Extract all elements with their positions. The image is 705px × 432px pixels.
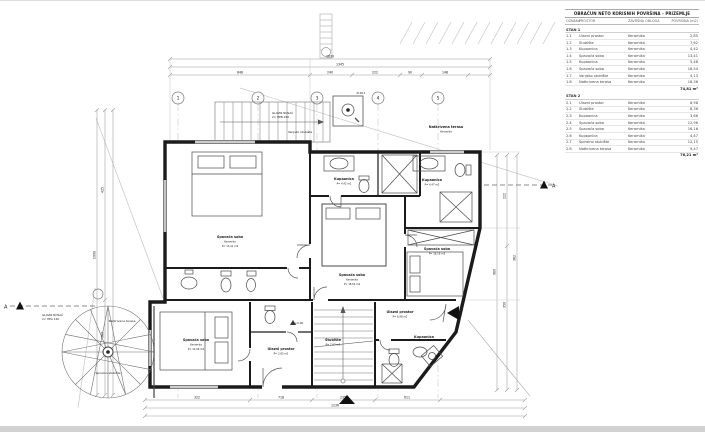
table-cell: 1.2: [565, 39, 578, 46]
table-cell: Spavaća soba: [578, 126, 627, 133]
table-cell: Stubište: [578, 39, 627, 46]
area-table-rows: STAN 11.1Ulazni prostorKeramika2,851.2St…: [565, 25, 699, 159]
table-row: 1.1Ulazni prostorKeramika2,85: [565, 33, 699, 40]
room-finish: Keramika: [224, 240, 236, 244]
table-cell: Keramika: [627, 79, 667, 86]
table-cell: 2.4: [565, 119, 578, 126]
dim-bottom: 611: [404, 396, 410, 400]
table-cell: 1.4: [565, 53, 578, 60]
table-cell: Keramika: [627, 53, 667, 60]
room-label: Ulazni prostor: [267, 347, 294, 351]
dim-top: 148: [442, 71, 448, 75]
table-row: 2.8Natkrivena terasaKeramika9,47: [565, 146, 699, 153]
beam-note: 2× HEB 240: [272, 115, 289, 119]
room-label: Vanjsko stubište: [288, 130, 312, 134]
dim-right: 362: [513, 255, 517, 261]
table-section-row: STAN 2: [565, 92, 699, 100]
grid-number: 1: [177, 96, 180, 102]
table-cell: 1.8: [565, 79, 578, 86]
room-area: P= 16,16 m2: [429, 252, 446, 256]
table-row: 1.7Vanjsko stubišteKeramika4,13: [565, 72, 699, 79]
dim-bottom: 718: [278, 396, 284, 400]
table-section-row: STAN 1: [565, 25, 699, 33]
section-arrow-icon: [540, 181, 548, 189]
table-cell: Kupaonica: [578, 46, 627, 53]
table-cell: Keramika: [627, 72, 667, 79]
section-letter: A: [552, 184, 556, 190]
dim-bottom: 322: [194, 396, 200, 400]
table-cell: Keramika: [627, 139, 667, 146]
table-cell: Spavaća soba: [578, 119, 627, 126]
room-label: Natkrivena terasa: [429, 125, 464, 129]
table-cell: Keramika: [627, 99, 667, 106]
dim-top: 848: [237, 71, 243, 75]
table-cell: 4,13: [667, 72, 699, 79]
table-cell: Keramika: [627, 33, 667, 40]
table-cell: 2.2: [565, 106, 578, 113]
table-cell: 1.5: [565, 59, 578, 66]
dim-top: 1345: [336, 63, 344, 67]
table-cell: 2.3: [565, 113, 578, 120]
hatch-band: [400, 22, 555, 44]
external-stair: [215, 102, 330, 142]
table-cell: 2.8: [565, 146, 578, 153]
grid-number: 4: [377, 96, 380, 102]
room-label: Ulazni prostor: [386, 310, 413, 314]
sheet-bottom-edge: [0, 426, 705, 432]
table-cell: 1.7: [565, 72, 578, 79]
grid-bubble: [93, 289, 103, 299]
table-cell: 13,41: [667, 53, 699, 60]
dim-top: 222: [372, 71, 378, 75]
area-table-title: OBRAČUN NETO KORISNIH POVRŠINA - PRIZEML…: [565, 9, 699, 18]
table-row: 2.6KupaonicaKeramika4,47: [565, 132, 699, 139]
table-row: 2.1Ulazni prostorKeramika8,98: [565, 99, 699, 106]
table-cell: 12,15: [667, 139, 699, 146]
table-cell: Vanjsko stubište: [578, 72, 627, 79]
table-cell: 4,47: [667, 132, 699, 139]
table-cell: 2.6: [565, 132, 578, 139]
table-row: 2.5Spavaća sobaKeramika16,16: [565, 126, 699, 133]
beam-note: 2× HEA 140: [42, 317, 59, 321]
table-cell: 12,96: [667, 119, 699, 126]
table-cell: 1.1: [565, 33, 578, 40]
dim-right: 350: [503, 302, 507, 308]
room-label: Spavaća soba: [183, 338, 210, 342]
table-cell: Ulazni prostor: [578, 33, 627, 40]
table-cell: 2,85: [667, 33, 699, 40]
sheet-top-border: [0, 0, 705, 1]
table-cell: 18,54: [667, 66, 699, 73]
table-cell: Keramika: [627, 126, 667, 133]
room-finish: Keramika: [440, 130, 452, 134]
dim-right: 222: [503, 193, 507, 199]
table-cell: 1.3: [565, 46, 578, 53]
room-label: Spiralno stubište: [95, 371, 120, 375]
table-cell: 1.6: [565, 66, 578, 73]
table-cell: Keramika: [627, 59, 667, 66]
table-cell: 9,47: [667, 146, 699, 153]
table-row: 1.2StubišteKeramika7,62: [565, 39, 699, 46]
table-cell: Kupaonica: [578, 59, 627, 66]
table-cell: Ulazni prostor: [578, 99, 627, 106]
room-finish: Keramika: [190, 343, 202, 347]
table-row: 2.7Spiralno stubišteKeramika12,15: [565, 139, 699, 146]
table-cell: 3,66: [667, 113, 699, 120]
room-area: P= 4,42 m2: [337, 182, 352, 186]
table-cell: Keramika: [627, 132, 667, 139]
room-label: Spavaća soba: [217, 235, 244, 239]
table-row: 1.3KupaonicaKeramika4,42: [565, 46, 699, 53]
room-area: P= 12,96 m2: [188, 347, 205, 351]
dim-right-overall: 980: [493, 269, 497, 275]
table-cell: Keramika: [627, 39, 667, 46]
room-label: Stubište: [325, 338, 342, 342]
table-cell: 18,36: [667, 79, 699, 86]
table-cell: 2.5: [565, 126, 578, 133]
table-cell: Keramika: [627, 119, 667, 126]
grid-number: 5: [437, 96, 440, 102]
table-row: 1.5KupaonicaKeramika5,48: [565, 59, 699, 66]
grid-number: 3: [316, 96, 319, 102]
table-cell: 8,36: [667, 106, 699, 113]
dim-top: 90: [408, 71, 412, 75]
table-cell: 5,48: [667, 59, 699, 66]
table-cell: Keramika: [627, 66, 667, 73]
room-label: Kupaonica: [334, 177, 355, 181]
room-area: P= 7,62 m2: [326, 343, 341, 347]
table-cell: 2.1: [565, 99, 578, 106]
room-finish: Keramika: [346, 278, 358, 282]
room-area: P= 13,41 m2: [222, 244, 239, 248]
table-cell: Natkrivena terasa: [578, 146, 627, 153]
table-cell: Stubište: [578, 106, 627, 113]
table-row: 2.4Spavaća sobaKeramika12,96: [565, 119, 699, 126]
room-area: P= 8,98 m2: [393, 315, 408, 319]
drawing-sheet: 1 2 3 4 5: [0, 0, 705, 432]
room-area: P= 18,54 m2: [344, 282, 361, 286]
room-area: P= 2,85 m2: [274, 352, 289, 356]
room-label: Kupaonica: [414, 335, 435, 339]
grid-number: 2: [257, 96, 260, 102]
table-cell: Keramika: [627, 46, 667, 53]
table-row: 1.4Spavaća sobaKeramika13,41: [565, 53, 699, 60]
table-cell: 4,42: [667, 46, 699, 53]
dim-bottom-overall: 1236: [331, 404, 339, 408]
dim-top-overall: 1630: [326, 55, 334, 59]
table-cell: 16,16: [667, 126, 699, 133]
table-cell: Spiralno stubište: [578, 139, 627, 146]
room-label: Kupaonica: [422, 178, 443, 182]
table-cell: Keramika: [627, 113, 667, 120]
table-total-row: 76,21 m²: [565, 152, 699, 158]
dim-left: 425: [101, 187, 105, 193]
table-cell: Spavaća soba: [578, 53, 627, 60]
table-cell: Natkrivena terasa: [578, 79, 627, 86]
table-cell: Spavaća soba: [578, 66, 627, 73]
chimney-note: Ø 48,3: [357, 90, 366, 95]
table-cell: Kupaonica: [578, 132, 627, 139]
area-table-grid: OZNAKA PROSTOR ZAVRŠNA OBLOGA POVRŠINA (…: [565, 18, 699, 158]
table-row: 1.8Natkrivena terasaKeramika18,36: [565, 79, 699, 86]
area-table: OBRAČUN NETO KORISNIH POVRŠINA - PRIZEML…: [565, 9, 699, 158]
section-letter: A: [4, 305, 8, 311]
table-cell: 8,98: [667, 99, 699, 106]
room-label: Spavaća soba: [424, 247, 451, 251]
section-arrow-icon: [16, 302, 24, 310]
dim-top: 240: [327, 71, 333, 75]
room-label: Spavaća soba: [339, 273, 366, 277]
table-cell: Keramika: [627, 106, 667, 113]
table-row: 1.6Spavaća sobaKeramika18,54: [565, 66, 699, 73]
level-mark: +0,00: [295, 321, 304, 325]
table-row: 2.3KupaonicaKeramika3,66: [565, 113, 699, 120]
table-cell: 7,62: [667, 39, 699, 46]
dim-left-overall: 1090: [93, 251, 97, 259]
table-cell: Keramika: [627, 146, 667, 153]
room-label: Natkrivena terasa: [109, 319, 136, 323]
table-cell: 2.7: [565, 139, 578, 146]
room-area: P= 4,47 m2: [425, 183, 440, 187]
table-cell: Kupaonica: [578, 113, 627, 120]
table-row: 2.2StubišteKeramika8,36: [565, 106, 699, 113]
